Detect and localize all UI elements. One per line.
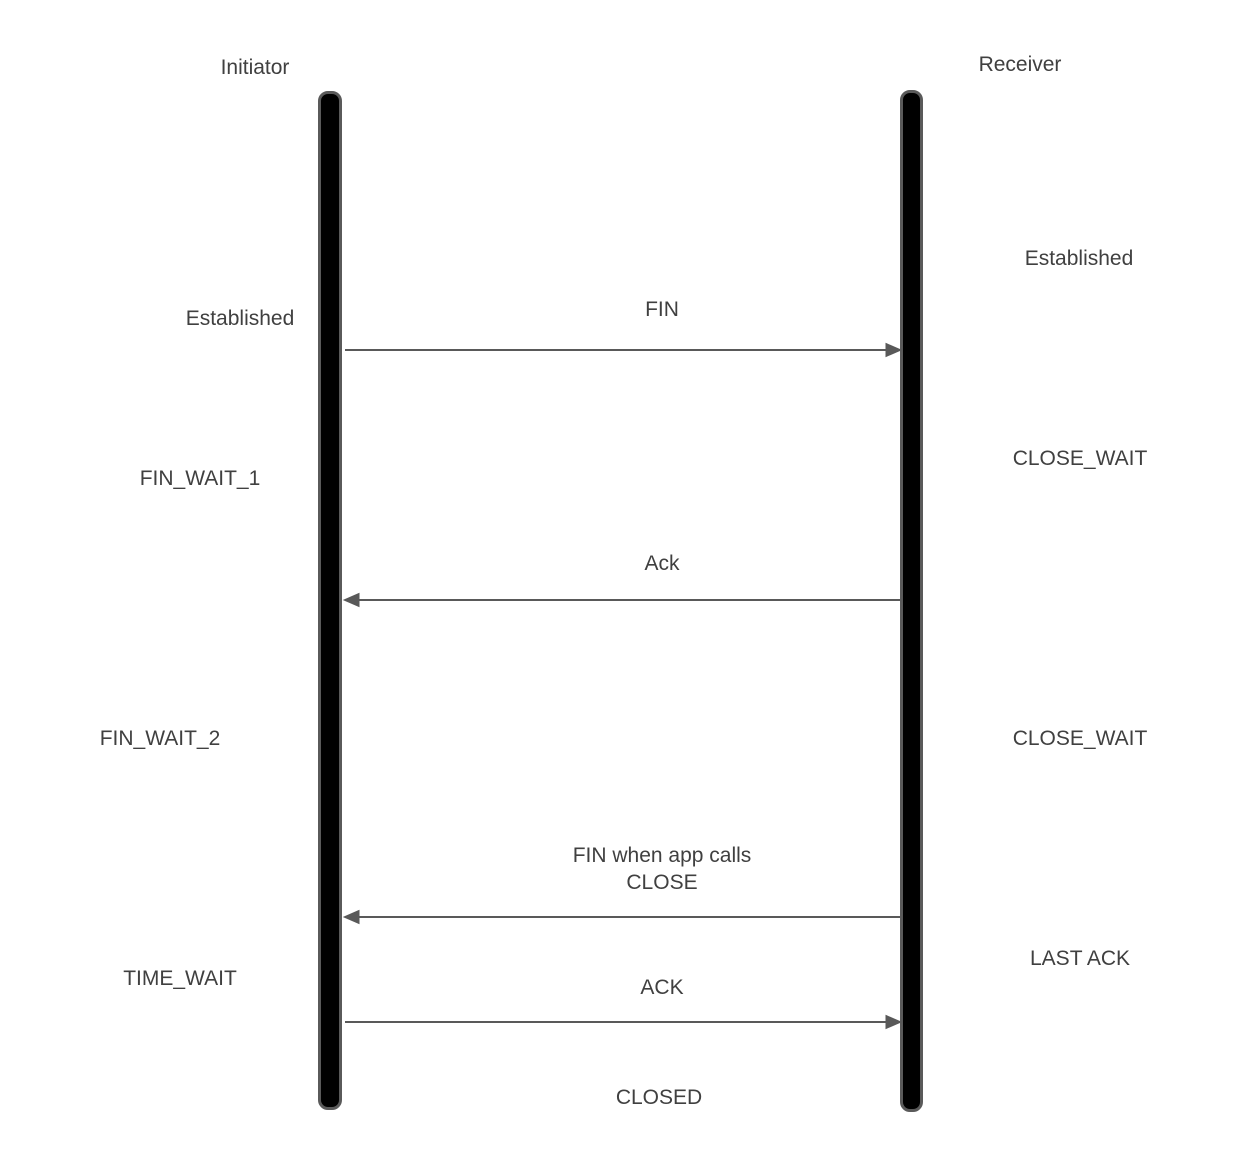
state-label-receiver-close-wait-2: CLOSE_WAIT	[960, 725, 1200, 752]
arrow-ack2-right	[345, 1016, 901, 1029]
participant-label-initiator: Initiator	[135, 54, 375, 81]
state-label-initiator-time-wait: TIME_WAIT	[60, 965, 300, 992]
state-label-initiator-established: Established	[120, 305, 360, 332]
message-label-fin: FIN	[542, 296, 782, 323]
state-label-initiator-fin-wait-1: FIN_WAIT_1	[80, 465, 320, 492]
sequence-diagram: Initiator Receiver Established FIN_WAIT_…	[0, 0, 1240, 1171]
state-label-initiator-fin-wait-2: FIN_WAIT_2	[40, 725, 280, 752]
state-label-receiver-last-ack: LAST ACK	[960, 945, 1200, 972]
state-label-closed: CLOSED	[539, 1084, 779, 1111]
arrow-fin-right	[345, 344, 901, 357]
lifeline-initiator	[318, 91, 342, 1110]
arrow-ack-left	[344, 594, 900, 607]
arrow-fin-close-left	[344, 911, 900, 924]
message-label-fin-when-app-calls-close: FIN when app calls CLOSE	[532, 842, 792, 896]
message-label-ack-final: ACK	[542, 974, 782, 1001]
lifeline-receiver	[900, 90, 923, 1112]
state-label-receiver-established: Established	[959, 245, 1199, 272]
message-label-ack: Ack	[542, 550, 782, 577]
participant-label-receiver: Receiver	[900, 51, 1140, 78]
state-label-receiver-close-wait-1: CLOSE_WAIT	[960, 445, 1200, 472]
